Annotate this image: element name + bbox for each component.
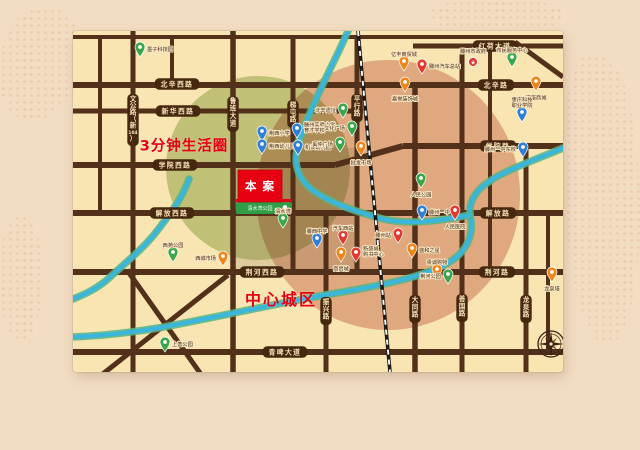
poi-label: 荆河公园 — [420, 272, 441, 280]
road-label-善国路: 善国路 — [456, 294, 467, 322]
green-pin-icon — [168, 247, 178, 262]
poi-西城市场: 西城市场 — [195, 251, 228, 266]
svg-text:路: 路 — [354, 109, 361, 118]
poi-label: 西城市场 — [195, 254, 216, 262]
poi-label: 汽车西站 — [333, 224, 354, 232]
poi-label: 人民医院 — [445, 223, 467, 231]
svg-text:清水湾公园: 清水湾公园 — [247, 205, 272, 212]
poi-label: 清水湾 — [275, 207, 291, 215]
svg-text:）: ） — [130, 135, 137, 143]
svg-text:青啤大道: 青啤大道 — [269, 348, 302, 357]
poi-label: 滕州站 — [375, 231, 391, 239]
green-pin-icon — [135, 42, 145, 57]
road-label-解放路: 解放路 — [480, 207, 516, 218]
poi-label: 北辛遗址 — [315, 106, 336, 114]
orange-pin-icon — [218, 251, 228, 266]
svg-text:路: 路 — [412, 310, 419, 319]
poi-label: 荆西小学 — [269, 129, 290, 137]
svg-text:路: 路 — [523, 310, 530, 319]
orange-pin-icon — [531, 76, 541, 91]
svg-text:学院西路: 学院西路 — [159, 161, 192, 170]
poi-市民服务中心: 市民服务中心 — [496, 46, 527, 67]
road-label-振兴路: 振兴路 — [320, 297, 331, 325]
svg-text:道: 道 — [230, 118, 237, 127]
road-label-学院西路: 学院西路 — [153, 159, 198, 170]
road-label-解放西路: 解放西路 — [150, 207, 195, 218]
map-panel: 北辛西路新华西路学院西路解放西路荆河西路青啤大道红荷大道北辛路学院路解放路荆河路… — [73, 31, 563, 372]
poi-label: 育才学校 — [304, 126, 325, 134]
screenshot-stage: 北辛西路新华西路学院西路解放西路荆河西路青啤大道红荷大道北辛路学院路解放路荆河路… — [0, 0, 640, 450]
poi-label: 上善公园 — [172, 340, 193, 348]
svg-text:新华西路: 新华西路 — [162, 107, 195, 116]
poi-label: 嘉誉装饰城 — [392, 95, 419, 103]
svg-text:北辛路: 北辛路 — [484, 81, 509, 90]
poi-枣庄科技: 枣庄科技职业学院 — [512, 96, 534, 123]
poi-label: 滕州市政府 — [460, 47, 486, 55]
svg-text:北辛西路: 北辛西路 — [161, 80, 194, 89]
poi-label: 文化广场 — [324, 124, 345, 132]
svg-text:路: 路 — [323, 312, 330, 321]
poi-label: 西苑公园 — [163, 241, 184, 249]
road-label-鲁班大道: 鲁班大道 — [227, 96, 238, 132]
road-label-青啤大道: 青啤大道 — [263, 346, 308, 357]
green-pin-icon — [507, 52, 517, 67]
road-label-文公路（新104）: 文公路（新104） — [127, 94, 138, 146]
poi-墨子科技园: 墨子科技园 — [135, 42, 173, 57]
poi-label: 滕西中学 — [307, 227, 328, 235]
world-dots — [565, 55, 640, 345]
poi-label: 购书中心 — [363, 250, 384, 258]
road-label-北辛路: 北辛路 — [478, 79, 514, 90]
svg-text:★: ★ — [470, 59, 475, 66]
poi-label: 荆西幼儿园 — [269, 142, 295, 150]
svg-text:新: 新 — [130, 120, 137, 129]
poi-label: 市民服务中心 — [496, 46, 527, 54]
poi-label: 人民公园 — [411, 192, 432, 199]
svg-text:解放路: 解放路 — [486, 209, 511, 218]
poi-label: 商贸城 — [333, 265, 349, 273]
poi-label: 龙泉塔 — [544, 285, 560, 293]
poi-label: 滕州一中 — [429, 208, 450, 216]
world-dots — [0, 8, 82, 120]
world-dots — [430, 0, 565, 30]
road-label-大同路: 大同路 — [409, 295, 420, 323]
poi-label: 墨子科技园 — [147, 45, 173, 53]
poi-label: 批发市场 — [351, 159, 372, 167]
project-marker: 本案 — [238, 170, 282, 202]
downtown-label: 中心城区 — [245, 286, 317, 310]
poi-label: 贵诚购物 — [427, 258, 448, 266]
road — [85, 275, 228, 372]
road-label-荆河西路: 荆河西路 — [240, 266, 285, 277]
svg-text:解放西路: 解放西路 — [156, 209, 189, 218]
poi-label: 亿丰商贸城 — [391, 50, 418, 58]
blue-pin-icon — [517, 107, 527, 122]
poi-label: 奚仲广场 — [312, 140, 333, 148]
road-label-平行路: 平行路 — [351, 94, 362, 122]
road-label-新华西路: 新华西路 — [156, 105, 201, 116]
road-label-荆河路: 荆河路 — [479, 266, 515, 277]
svg-text:路: 路 — [290, 115, 297, 124]
poi-label: 盛和之星 — [419, 246, 440, 254]
svg-text:荆河西路: 荆河西路 — [246, 268, 279, 277]
project-label: 本案 — [245, 179, 280, 193]
poi-西苑公园: 西苑公园 — [163, 241, 184, 262]
poi-label: 滕州一中东校 — [485, 145, 516, 153]
svg-text:荆河路: 荆河路 — [485, 268, 510, 277]
poi-label: 滕州汽车总站 — [429, 62, 460, 70]
map-svg: 北辛西路新华西路学院西路解放西路荆河西路青啤大道红荷大道北辛路学院路解放路荆河路… — [73, 31, 563, 372]
poi-label: 职业学院 — [512, 101, 534, 109]
road-label-龙泉路: 龙泉路 — [520, 295, 531, 323]
life-circle-label: 3分钟生活圈 — [140, 135, 229, 156]
svg-text:路: 路 — [459, 309, 466, 318]
road-label-北辛西路: 北辛西路 — [155, 78, 200, 89]
world-dots — [0, 215, 42, 340]
